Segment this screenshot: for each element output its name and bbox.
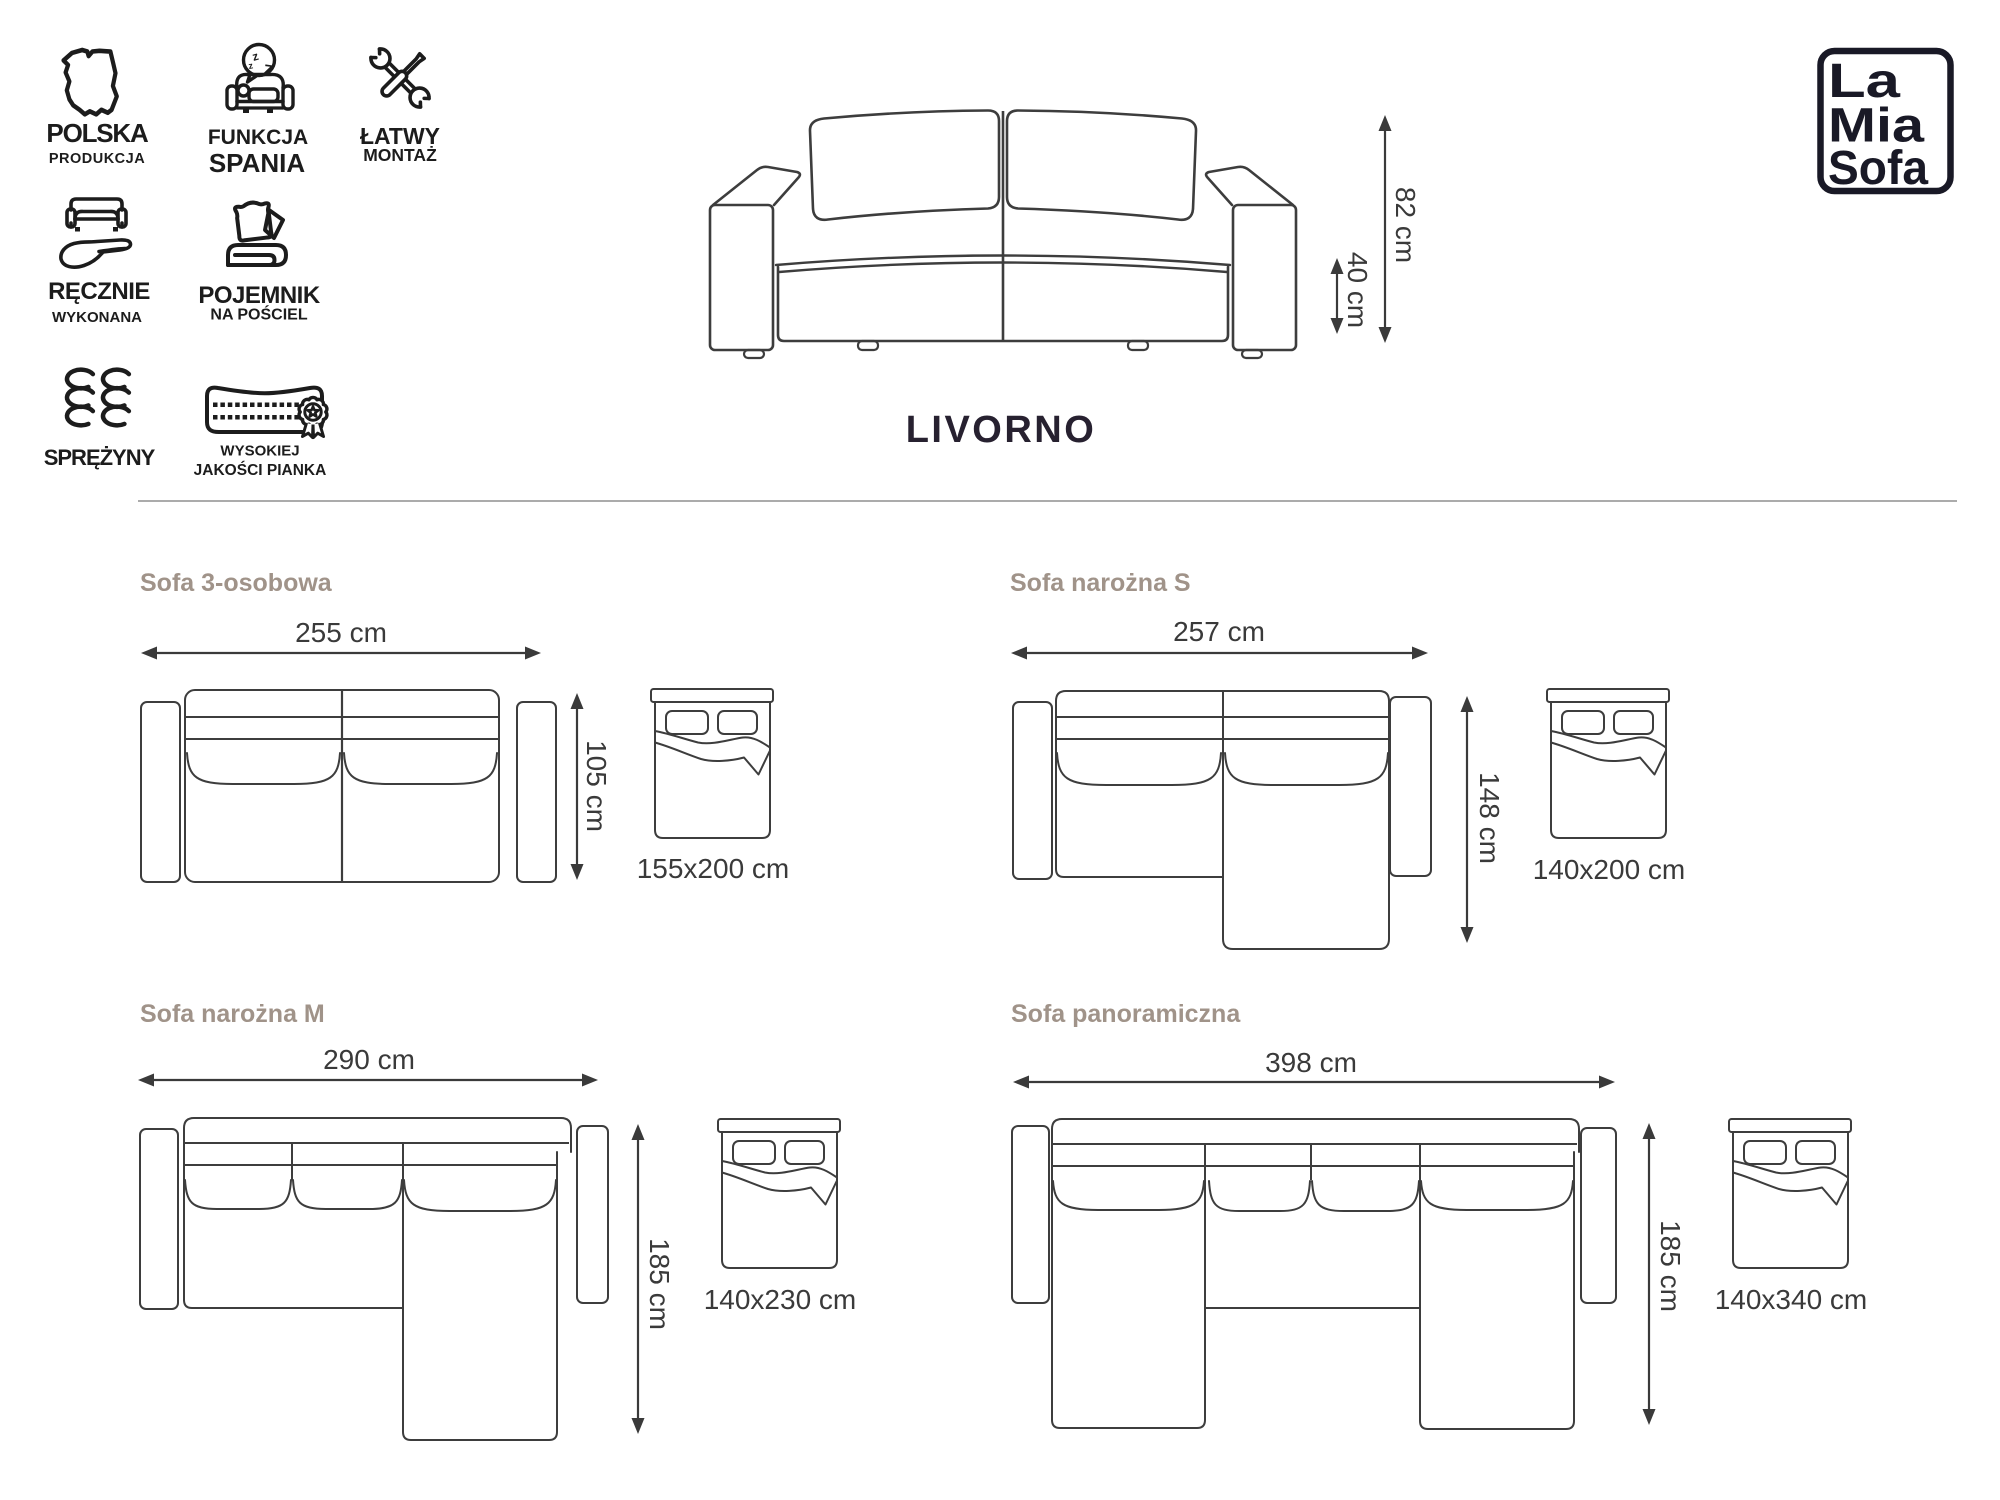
svg-text:105 cm: 105 cm [581,740,612,832]
svg-text:185 cm: 185 cm [1655,1220,1686,1312]
svg-text:POJEMNIK: POJEMNIK [198,282,321,309]
svg-text:Sofa narożna M: Sofa narożna M [140,1000,325,1028]
svg-text:Sofa panoramiczna: Sofa panoramiczna [1011,1000,1241,1028]
svg-text:255 cm: 255 cm [295,617,387,648]
svg-text:140x340 cm: 140x340 cm [1715,1284,1868,1315]
svg-text:MONTAŻ: MONTAŻ [363,145,437,165]
svg-text:185 cm: 185 cm [644,1238,675,1330]
svg-text:290 cm: 290 cm [323,1044,415,1075]
svg-text:LIVORNO: LIVORNO [906,409,1097,451]
svg-text:SPANIA: SPANIA [209,148,306,178]
svg-text:Sofa: Sofa [1828,142,1928,195]
svg-text:Sofa narożna S: Sofa narożna S [1010,569,1191,597]
svg-text:PRODUKCJA: PRODUKCJA [49,151,145,167]
svg-text:398 cm: 398 cm [1265,1047,1357,1078]
svg-text:RĘCZNIE: RĘCZNIE [48,278,150,305]
svg-text:JAKOŚCI PIANKA: JAKOŚCI PIANKA [194,461,327,479]
svg-text:257 cm: 257 cm [1173,616,1265,647]
svg-text:SPRĘŻYNY: SPRĘŻYNY [44,445,156,470]
svg-text:POLSKA: POLSKA [46,118,149,148]
svg-text:140x200 cm: 140x200 cm [1533,854,1686,885]
svg-text:WYSOKIEJ: WYSOKIEJ [220,443,299,460]
svg-text:40 cm: 40 cm [1342,252,1373,328]
svg-text:82 cm: 82 cm [1390,187,1421,263]
svg-text:NA POŚCIEL: NA POŚCIEL [210,305,307,324]
svg-text:WYKONANA: WYKONANA [52,309,142,326]
svg-text:140x230 cm: 140x230 cm [704,1284,857,1315]
svg-text:155x200 cm: 155x200 cm [637,853,790,884]
svg-text:FUNKCJA: FUNKCJA [208,126,308,149]
svg-text:148 cm: 148 cm [1474,772,1505,864]
svg-text:Sofa 3-osobowa: Sofa 3-osobowa [140,569,333,597]
